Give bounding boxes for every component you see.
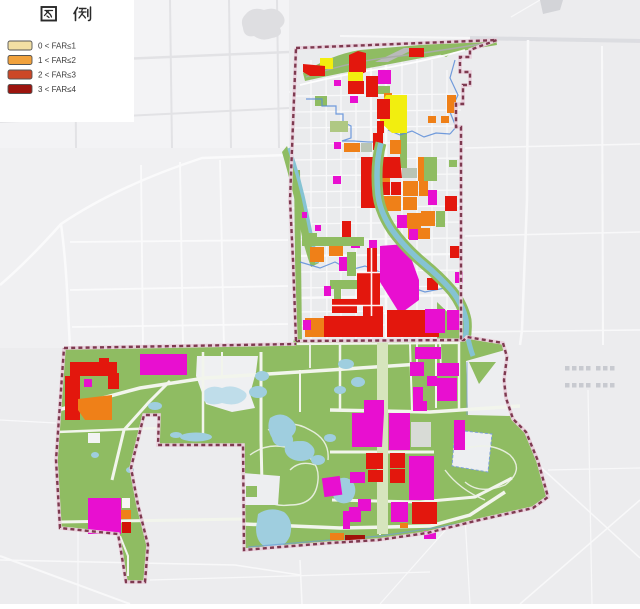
svg-text:2 < FAR≤3: 2 < FAR≤3	[38, 71, 77, 80]
svg-text:3 < FAR≤4: 3 < FAR≤4	[38, 85, 77, 94]
svg-text:1 < FAR≤2: 1 < FAR≤2	[38, 56, 77, 65]
svg-text:0 < FAR≤1: 0 < FAR≤1	[38, 42, 77, 51]
